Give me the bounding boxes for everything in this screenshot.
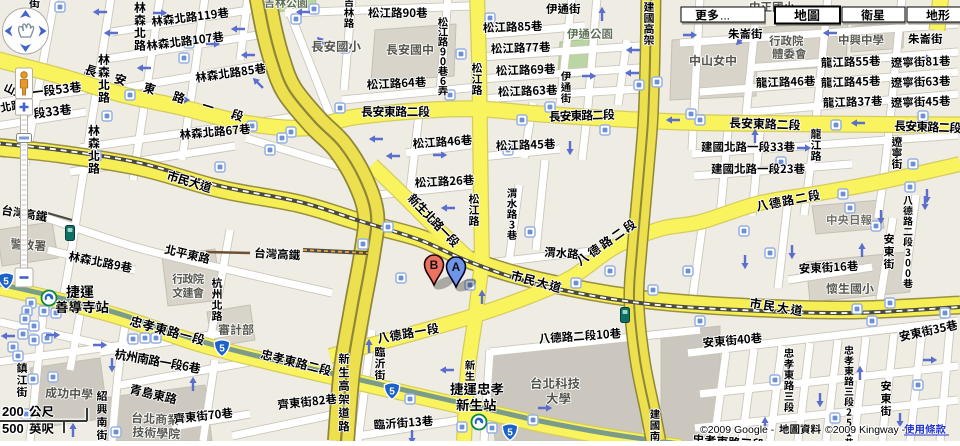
- svg-text:500: 500: [2, 421, 24, 436]
- svg-text:©2009 Google -: ©2009 Google -: [700, 424, 775, 436]
- svg-text:B: B: [430, 258, 439, 272]
- svg-text:200: 200: [2, 404, 24, 419]
- svg-text:©2009 Kingway -: ©2009 Kingway -: [825, 424, 906, 436]
- svg-text:...: ...: [720, 9, 730, 23]
- svg-text:A: A: [452, 260, 461, 274]
